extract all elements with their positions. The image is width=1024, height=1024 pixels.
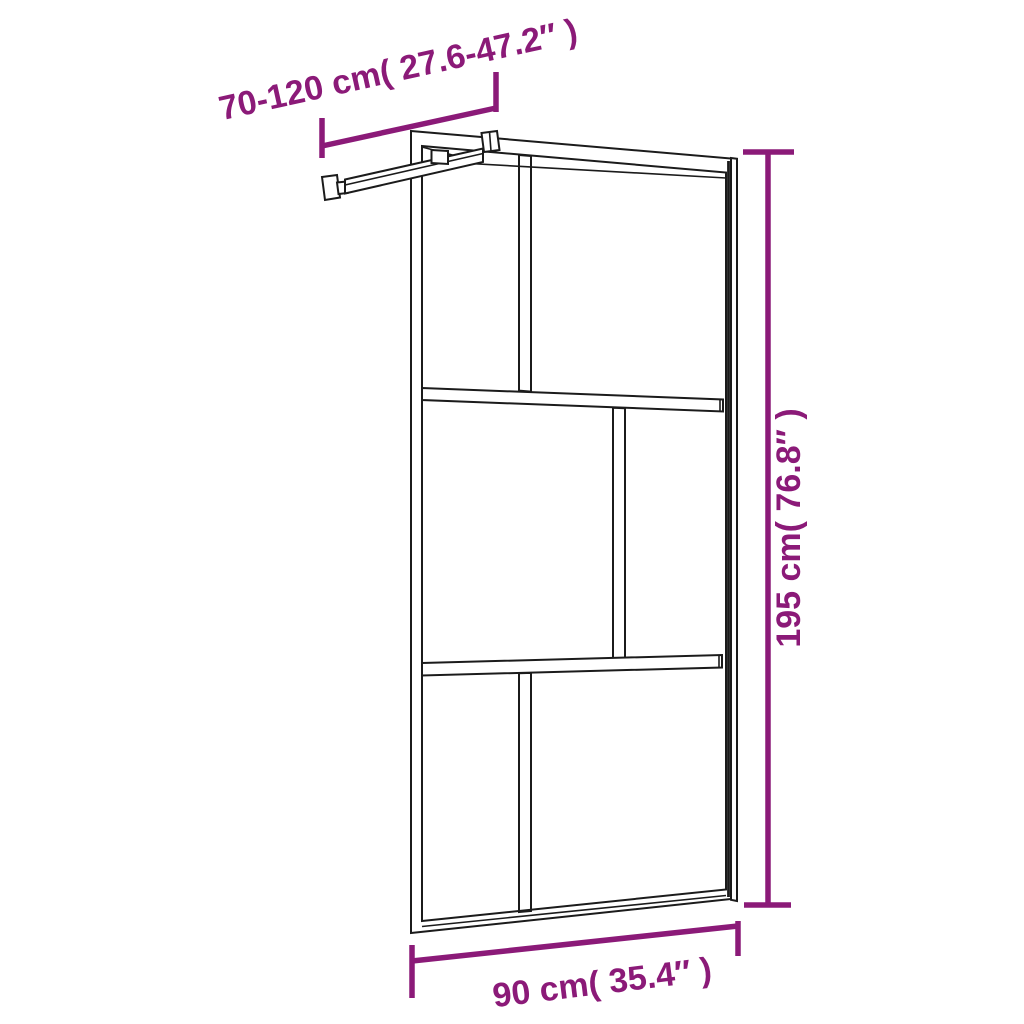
glass-bottom-edge [422,896,726,927]
divider-top-section [519,155,531,392]
glass-clamp [432,150,449,164]
base-width-label: 90 cm( 35.4″ ) [490,951,713,1016]
support-arm-bar [345,149,483,194]
width-range-line [322,108,496,146]
frame-inner-edge [422,146,726,921]
dimension-width-range: 70-120 cm( 27.6-47.2″ ) [215,12,581,158]
height-label: 195 cm( 76.8″ ) [770,408,808,647]
shower-screen-outline [411,131,737,933]
dimension-diagram-page: 70-120 cm( 27.6-47.2″ ) 195 cm( 76.8″ ) … [0,0,1024,1024]
glass-top-edge [452,163,726,179]
shower-screen-dimension-diagram: 70-120 cm( 27.6-47.2″ ) 195 cm( 76.8″ ) … [0,0,1024,1024]
dimension-base-width: 90 cm( 35.4″ ) [412,921,738,1015]
frame-outer-edge [411,131,731,933]
crossbar-upper [422,388,723,412]
width-range-label: 70-120 cm( 27.6-47.2″ ) [215,12,581,128]
divider-middle-section [613,408,625,659]
crossbar-lower [422,655,722,676]
divider-bottom-section [519,673,531,912]
wall-profile [731,158,737,901]
support-arm-edge-line [345,154,483,186]
dimension-height: 195 cm( 76.8″ ) [743,152,808,905]
